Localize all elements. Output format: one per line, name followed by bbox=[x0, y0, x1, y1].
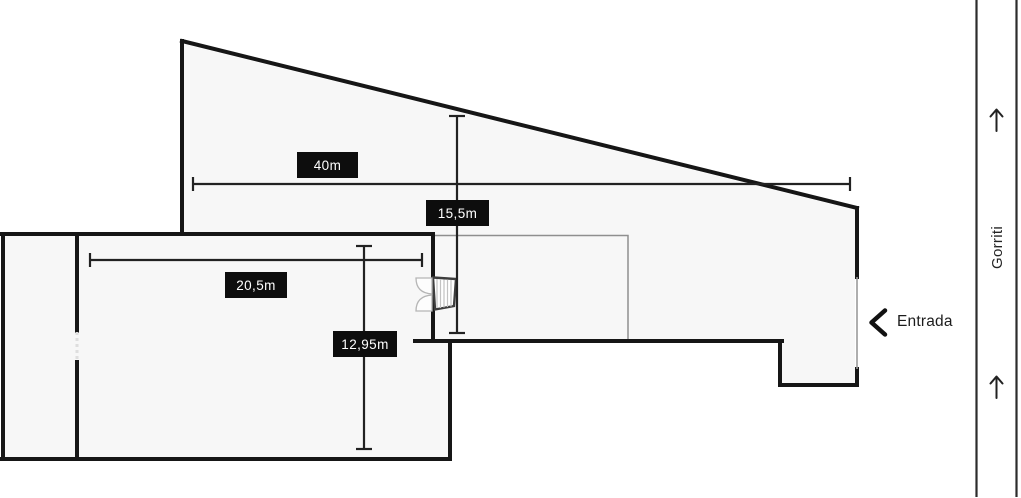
arrow-up-icon-top bbox=[991, 110, 1003, 132]
arrow-up-icon-bottom bbox=[991, 377, 1003, 399]
building-fills bbox=[4, 44, 855, 457]
dimension-label-lower-width: 20,5m bbox=[225, 272, 287, 298]
entrance-chevron-icon bbox=[872, 311, 886, 335]
entrance-label: Entrada bbox=[897, 313, 953, 331]
dimension-label-upper-depth: 15,5m bbox=[426, 200, 489, 226]
street-name-text: Gorriti bbox=[989, 226, 1006, 269]
street-name: Gorriti bbox=[977, 214, 1017, 280]
stairs-icon bbox=[433, 278, 456, 310]
floor-plan-drawing bbox=[0, 0, 1021, 498]
floor-plan: 40m 15,5m 20,5m 12,95m Entrada Gorriti bbox=[0, 0, 1021, 498]
dimension-label-lower-depth: 12,95m bbox=[333, 331, 397, 357]
dimension-label-upper-width: 40m bbox=[297, 152, 358, 178]
